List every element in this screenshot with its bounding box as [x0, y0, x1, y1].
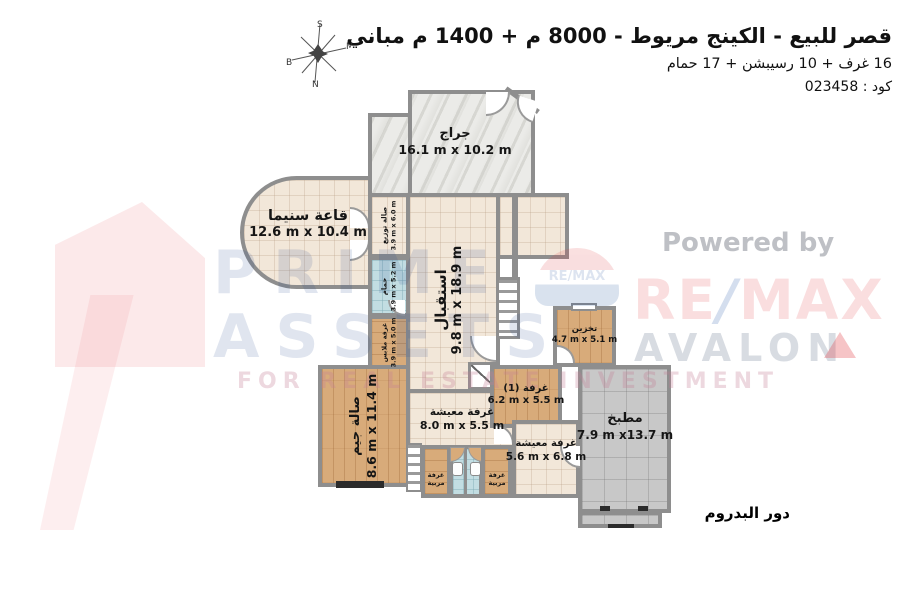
living2-name: غرفة معيشة — [515, 438, 576, 451]
room1-label: غرفة (1) 6.2 m x 5.5 m — [496, 376, 556, 414]
bathroom-dims: 3.9 m x 5.2 m — [389, 262, 397, 312]
compass-bottom-letter: N — [312, 80, 319, 88]
room-distribution-hall: صالة توزيع 3.9 m x 6.0 m — [368, 193, 410, 258]
living1-name: غرفة معيشة — [430, 406, 494, 419]
floor-plan-page: PRIME ASSETS FOR REAL ESTATE INVESTMENT … — [0, 0, 900, 600]
bathroom-name: حمام — [380, 278, 389, 296]
compass-top-letter: S — [317, 20, 323, 30]
stair-wall — [512, 195, 518, 279]
garage-label: جراج 16.1 m x 10.2 m — [390, 118, 520, 166]
listing-subtitle: 16 غرف + 10 رسيبشن + 17 حمام — [667, 56, 892, 72]
bathroom-label: حمام 3.9 m x 5.2 m — [363, 270, 416, 304]
remax-re: RE — [633, 268, 717, 332]
dressing-name: غرفة ملابس — [381, 323, 389, 363]
compass-right-letter: M — [346, 42, 352, 52]
distribution-hall-dims: 3.9 m x 6.0 m — [389, 201, 397, 251]
listing-code: كود : 023458 — [805, 79, 892, 95]
service-ladder — [406, 443, 422, 492]
kitchen-label: مطبخ 7.9 m x13.7 m — [586, 402, 664, 452]
remax-slash: / — [717, 268, 739, 332]
garage-dims: 16.1 m x 10.2 m — [398, 142, 511, 158]
nanny-right-label: غرفة مربية — [483, 466, 511, 492]
reception-dims: 9.8 m x 18.9 m — [450, 246, 466, 355]
storage-window — [571, 303, 597, 311]
avalon-arrow-icon — [824, 332, 856, 358]
nanny-left-name: غرفة مربية — [424, 471, 448, 487]
toilet-fixture — [452, 462, 463, 476]
dressing-label: غرفة ملابس 3.9 m x 5.0 m — [366, 326, 413, 360]
kitchen-name: مطبخ — [607, 411, 642, 427]
storage-dims: 4.7 m x 5.1 m — [552, 335, 617, 346]
compass-rose-icon: S N B M — [286, 18, 352, 88]
kitchen-dims: 7.9 m x13.7 m — [577, 428, 673, 443]
gym-label: صالة جيم 8.6 m x 11.4 m — [342, 360, 386, 492]
garage-name: جراج — [439, 126, 470, 142]
staircase — [496, 277, 520, 339]
cinema-dims: 12.6 m x 10.4 m — [249, 225, 367, 241]
remax-watermark-text: RE/MAX — [633, 268, 885, 332]
nanny-right-name: غرفة مربية — [485, 471, 509, 487]
living2-label: غرفة معيشة 5.6 m x 6.8 m — [514, 430, 578, 472]
reception-label: استقبال 9.8 m x 18.9 m — [427, 230, 471, 370]
room1-name: غرفة (1) — [503, 383, 548, 396]
living1-dims: 8.0 m x 5.5 m — [420, 419, 504, 433]
storage-label: تخزين 4.7 m x 5.1 m — [556, 318, 613, 352]
avalon-watermark-text: AVALON — [634, 326, 846, 370]
gym-dims: 8.6 m x 11.4 m — [364, 374, 380, 479]
annex-door-threshold — [608, 524, 634, 528]
gym-name: صالة جيم — [348, 396, 364, 456]
living2-dims: 5.6 m x 6.8 m — [506, 451, 586, 464]
remax-balloon-label: RE/MAX — [535, 269, 619, 284]
reception-name: استقبال — [432, 269, 451, 331]
powered-by-text: Powered by — [662, 228, 834, 258]
prime-assets-house-logo — [55, 202, 205, 367]
listing-title: قصر للبيع - الكينج مريوط - 8000 م + 1400… — [346, 24, 892, 48]
distribution-hall-name: صالة توزيع — [380, 207, 389, 244]
room1-dims: 6.2 m x 5.5 m — [488, 395, 565, 408]
nanny-left-label: غرفة مربية — [422, 466, 450, 492]
toilet-fixture — [470, 462, 481, 476]
storage-name: تخزين — [572, 324, 597, 335]
cinema-label: قاعة سنيما 12.6 m x 10.4 m — [252, 196, 364, 252]
dressing-dims: 3.9 m x 5.0 m — [389, 318, 397, 368]
wc-divider-wall — [464, 447, 467, 496]
distribution-hall-label: صالة توزيع 3.9 m x 6.0 m — [361, 209, 418, 243]
cinema-name: قاعة سنيما — [268, 207, 348, 225]
prime-assets-swoosh — [40, 295, 160, 530]
remax-max: MAX — [739, 268, 885, 332]
floor-name-label: دور البدروم — [705, 504, 790, 522]
compass-left-letter: B — [286, 58, 292, 68]
